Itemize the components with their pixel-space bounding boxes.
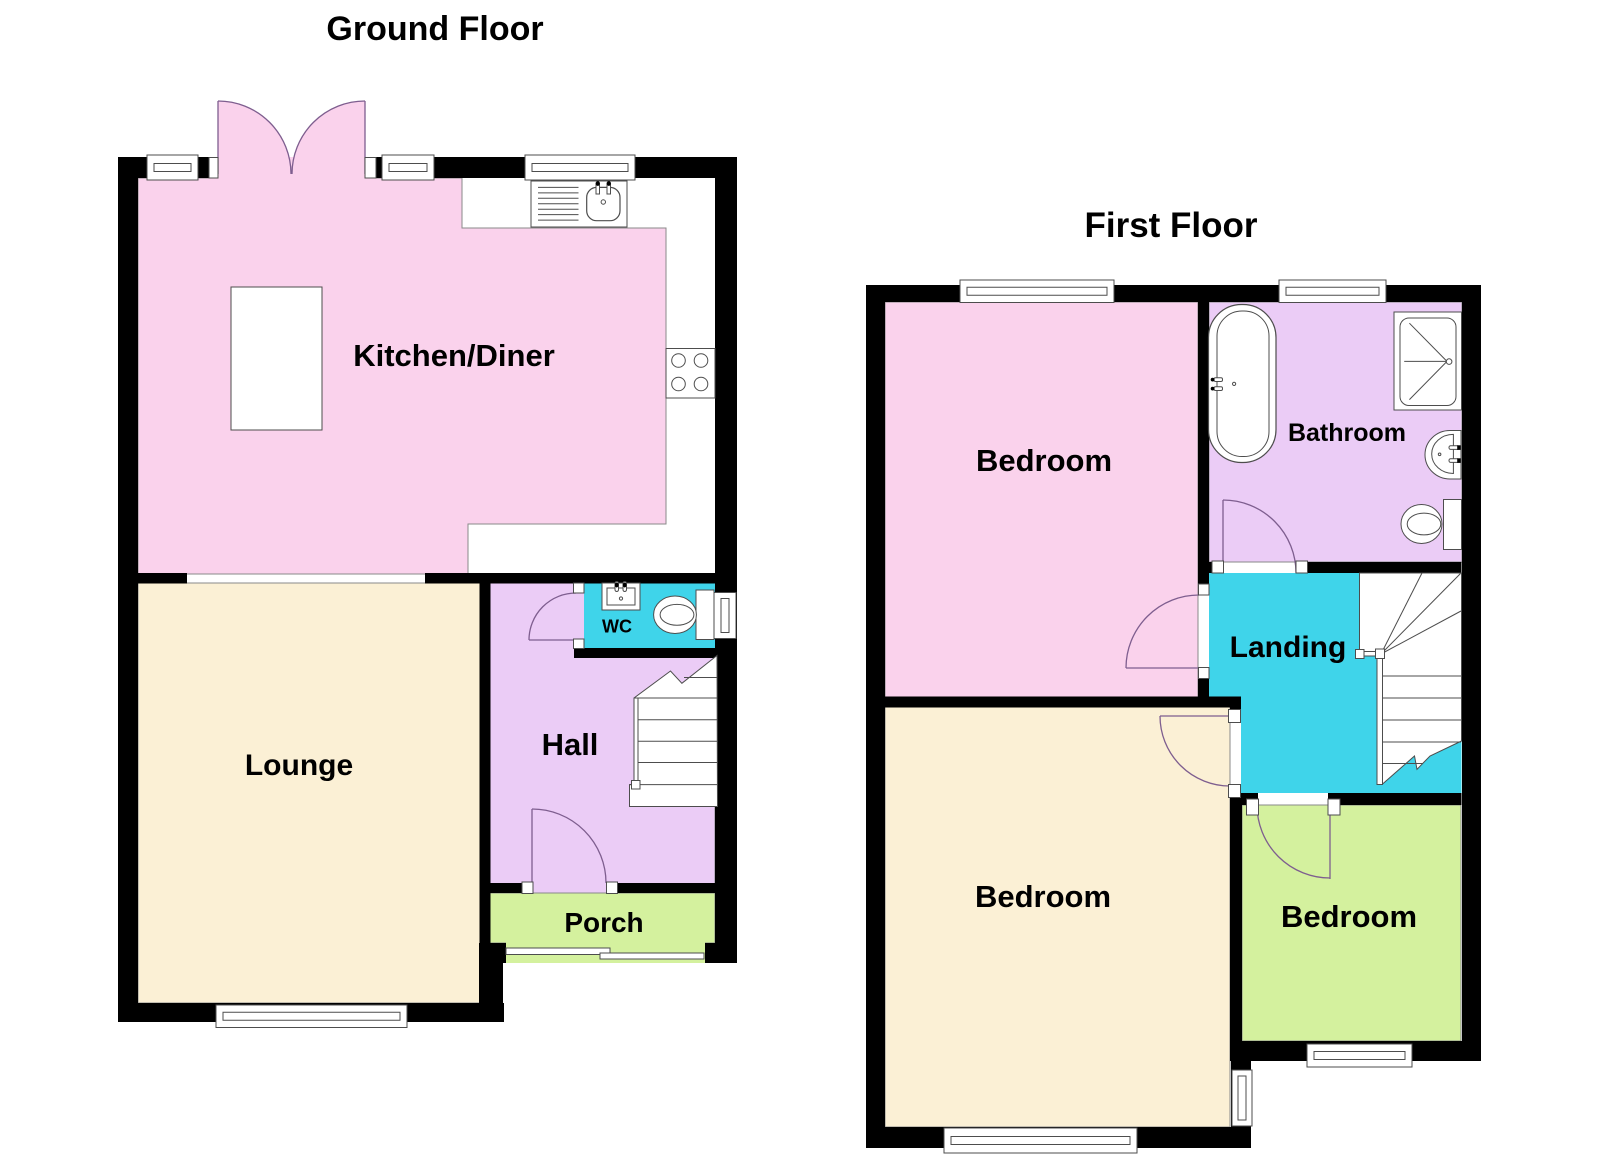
- svg-text:Lounge: Lounge: [245, 749, 353, 782]
- svg-text:Porch: Porch: [564, 907, 643, 938]
- svg-text:First Floor: First Floor: [1084, 206, 1257, 245]
- svg-text:Hall: Hall: [542, 727, 599, 762]
- svg-text:Bedroom: Bedroom: [976, 443, 1112, 478]
- svg-text:Bedroom: Bedroom: [975, 879, 1111, 914]
- svg-text:Kitchen/Diner: Kitchen/Diner: [353, 338, 555, 373]
- svg-text:WC: WC: [602, 617, 632, 637]
- svg-text:Bathroom: Bathroom: [1288, 419, 1406, 447]
- svg-text:Bedroom: Bedroom: [1281, 899, 1417, 934]
- svg-text:Ground Floor: Ground Floor: [326, 10, 543, 48]
- svg-text:Landing: Landing: [1230, 631, 1347, 664]
